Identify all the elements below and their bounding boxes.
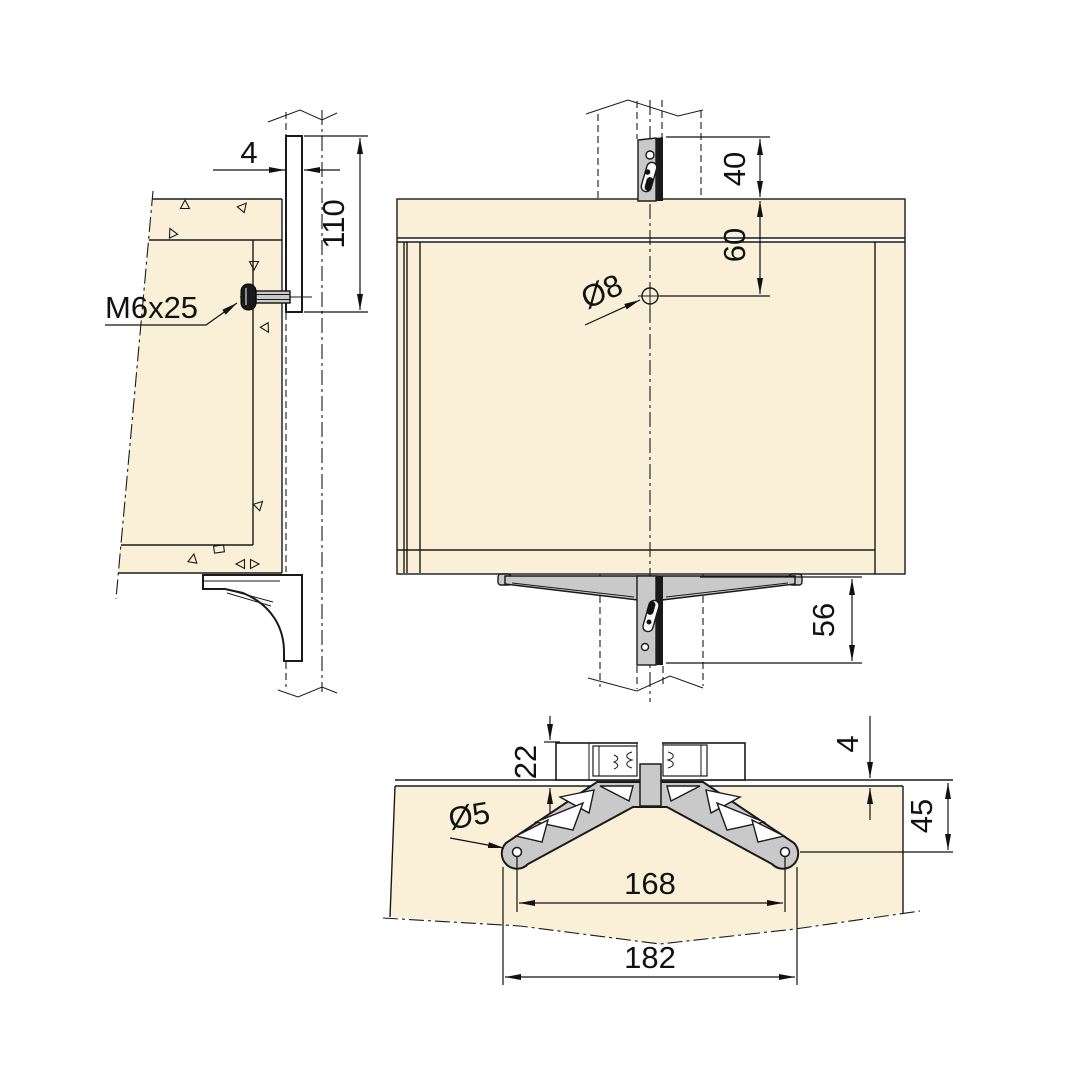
drawing-svg: 4 110 M6x25 (0, 0, 1080, 1080)
dim-label-top-gap: 40 (717, 152, 752, 186)
dim-plate-height: 110 (304, 136, 368, 312)
dim-label-bottom-drop: 56 (806, 603, 841, 637)
break-zigzag-bottom (588, 676, 703, 691)
front-panel (397, 199, 905, 574)
dim-plate-thickness: 4 (213, 135, 340, 170)
break-zigzag-top (586, 100, 703, 116)
screw-label: M6x25 (105, 290, 198, 325)
side-view: 4 110 M6x25 (105, 110, 368, 697)
bracket-pin-hole (642, 644, 649, 651)
dim-label-hole-spacing: 168 (624, 866, 676, 901)
side-wall-plate (286, 136, 302, 312)
dim-label-edge-to-hole: 45 (904, 799, 939, 833)
bottom-bracket-front (498, 574, 802, 665)
hanger-pin-hole (646, 151, 654, 159)
dim-label-profile-height: 22 (508, 745, 543, 779)
dim-label-overall-width: 182 (624, 940, 676, 975)
dim-label-hole-from-top: 60 (717, 228, 752, 262)
plan-view: 22 4 45 Ø5 168 182 (383, 716, 953, 985)
profile-tab (640, 764, 661, 806)
side-support-bracket (203, 575, 302, 661)
dim-label-plate-height: 110 (316, 199, 351, 248)
side-panel (118, 199, 282, 573)
technical-drawing-canvas: 4 110 M6x25 (0, 0, 1080, 1080)
front-view: Ø8 40 60 (397, 100, 905, 702)
break-zigzag-bottom (278, 687, 337, 697)
dim-label-plate-thickness: 4 (240, 135, 257, 170)
dim-label-plate-gap: 4 (830, 735, 865, 752)
top-hanger-bracket (638, 137, 663, 201)
bracket-hole-left (513, 848, 522, 857)
break-zigzag-top (268, 110, 337, 122)
dim-label-hole-diameter-plan: Ø5 (446, 795, 493, 837)
dim-top-gap: 40 (666, 137, 770, 197)
bracket-hole-right (781, 848, 790, 857)
